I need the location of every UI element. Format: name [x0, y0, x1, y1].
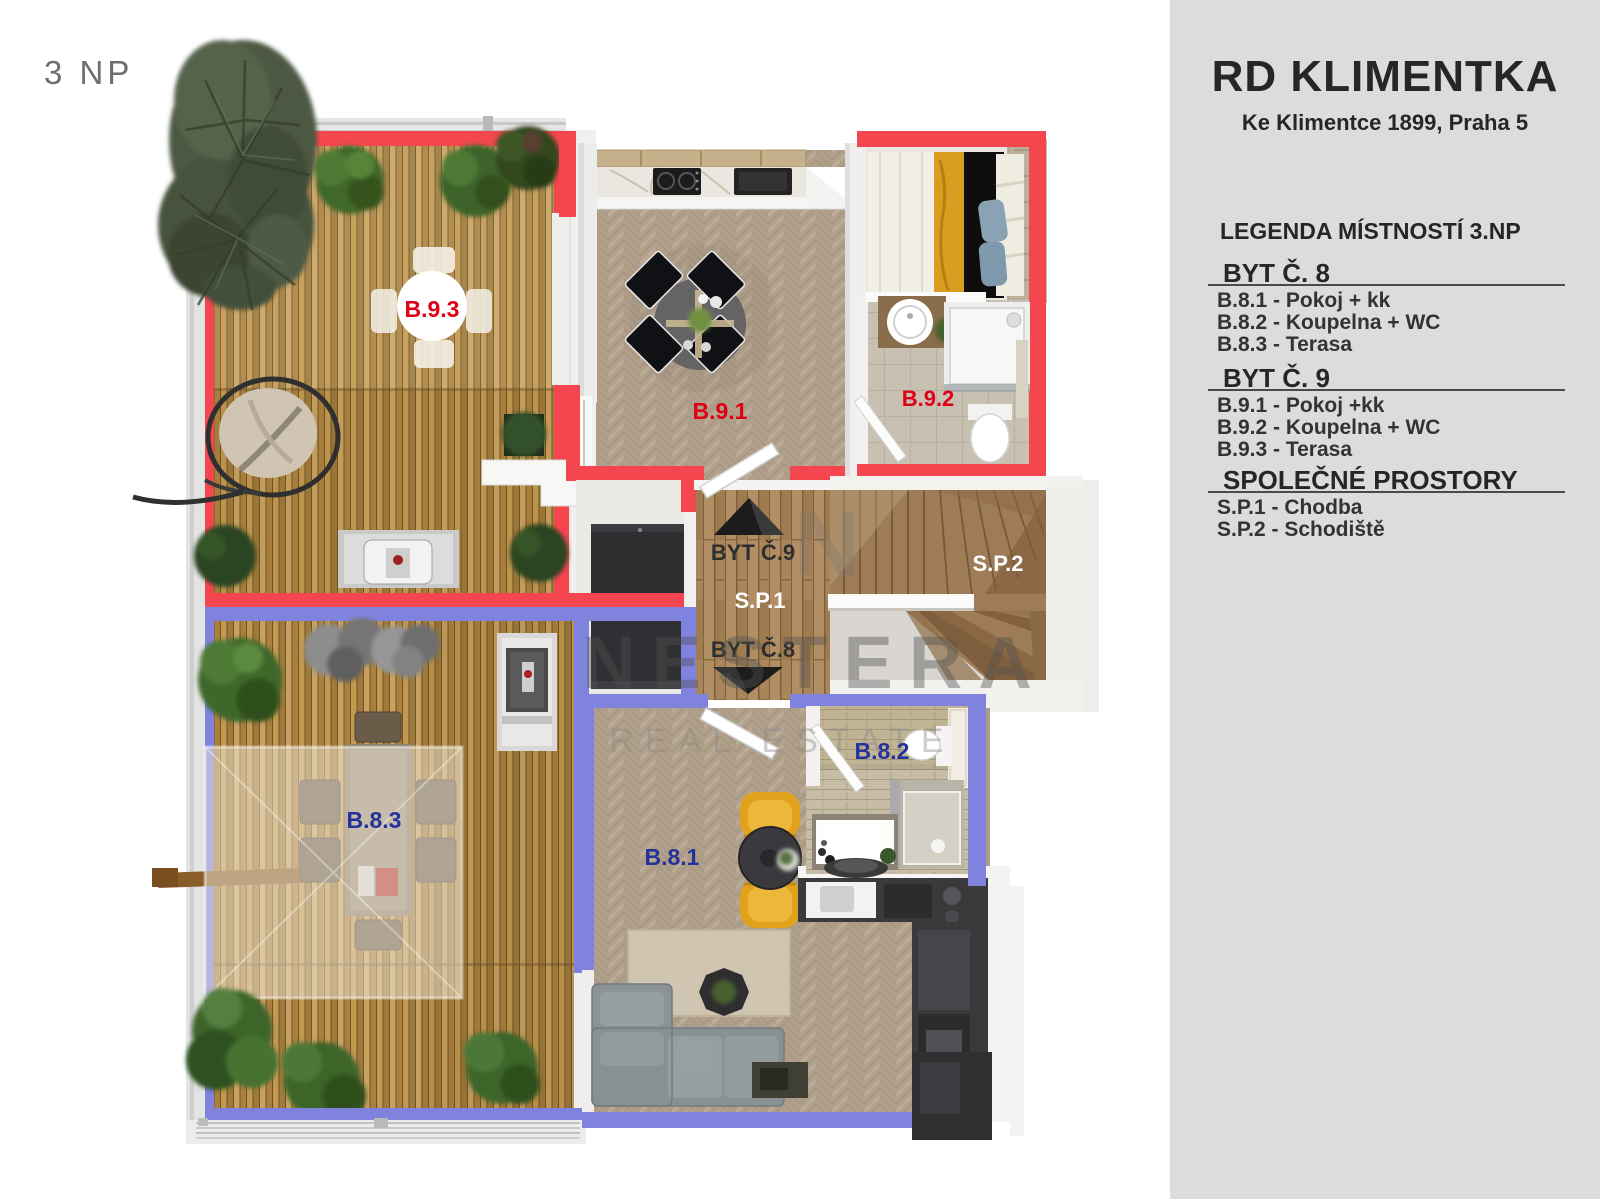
svg-text:BYT Č.9: BYT Č.9 [711, 540, 795, 565]
svg-text:N: N [794, 493, 860, 595]
svg-text:S.P.2: S.P.2 [973, 551, 1024, 576]
svg-text:S.P.1: S.P.1 [735, 588, 786, 613]
svg-text:B.8.3: B.8.3 [347, 807, 402, 833]
svg-text:B.9.2: B.9.2 [902, 386, 955, 411]
svg-text:B.9.3: B.9.3 [405, 296, 460, 322]
svg-text:B.8.2: B.8.2 [855, 738, 910, 764]
svg-text:B.9.1: B.9.1 [693, 398, 748, 424]
svg-text:NESTERA: NESTERA [582, 621, 1048, 704]
svg-text:B.8.1: B.8.1 [645, 844, 700, 870]
